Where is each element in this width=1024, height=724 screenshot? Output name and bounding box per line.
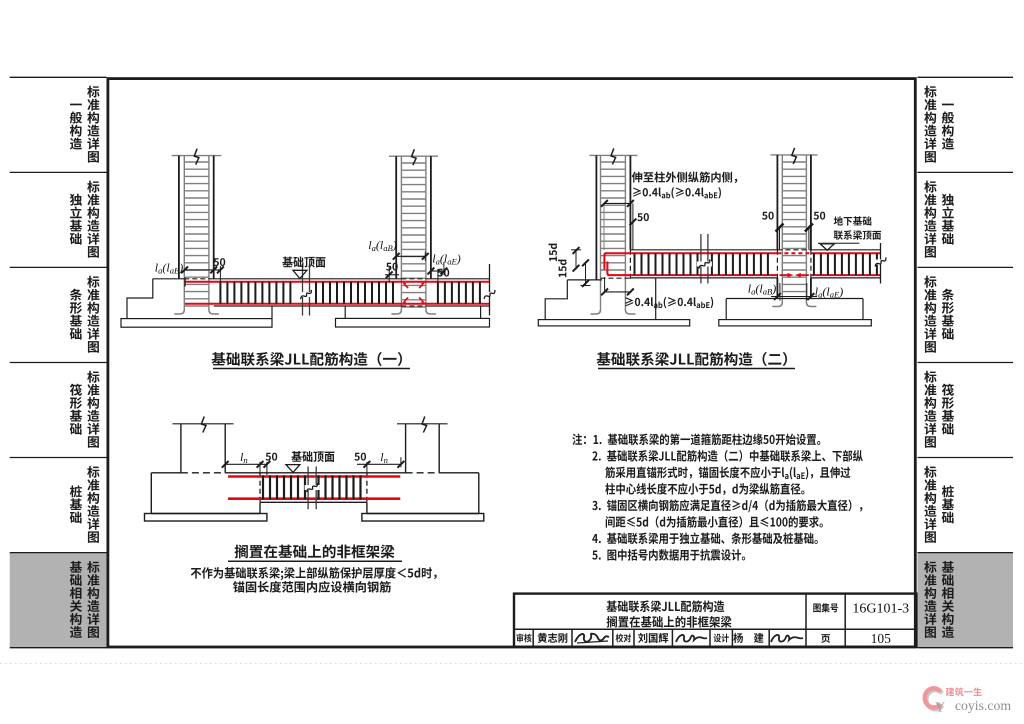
svg-text:105: 105	[871, 631, 892, 646]
svg-text:la(laB): la(laB)	[748, 282, 777, 297]
svg-text:Y: Y	[935, 701, 945, 716]
svg-text:la(laE): la(laE)	[155, 261, 184, 276]
svg-text:ln: ln	[240, 450, 248, 465]
svg-text:16G101-3: 16G101-3	[852, 602, 909, 617]
svg-text:la(laB): la(laB)	[368, 238, 397, 253]
svg-text:ln: ln	[380, 450, 388, 465]
svg-text:la(laE): la(laE)	[815, 285, 844, 300]
svg-text:la(laE): la(laE)	[432, 252, 461, 267]
svg-text:coyis.com: coyis.com	[955, 698, 1012, 713]
